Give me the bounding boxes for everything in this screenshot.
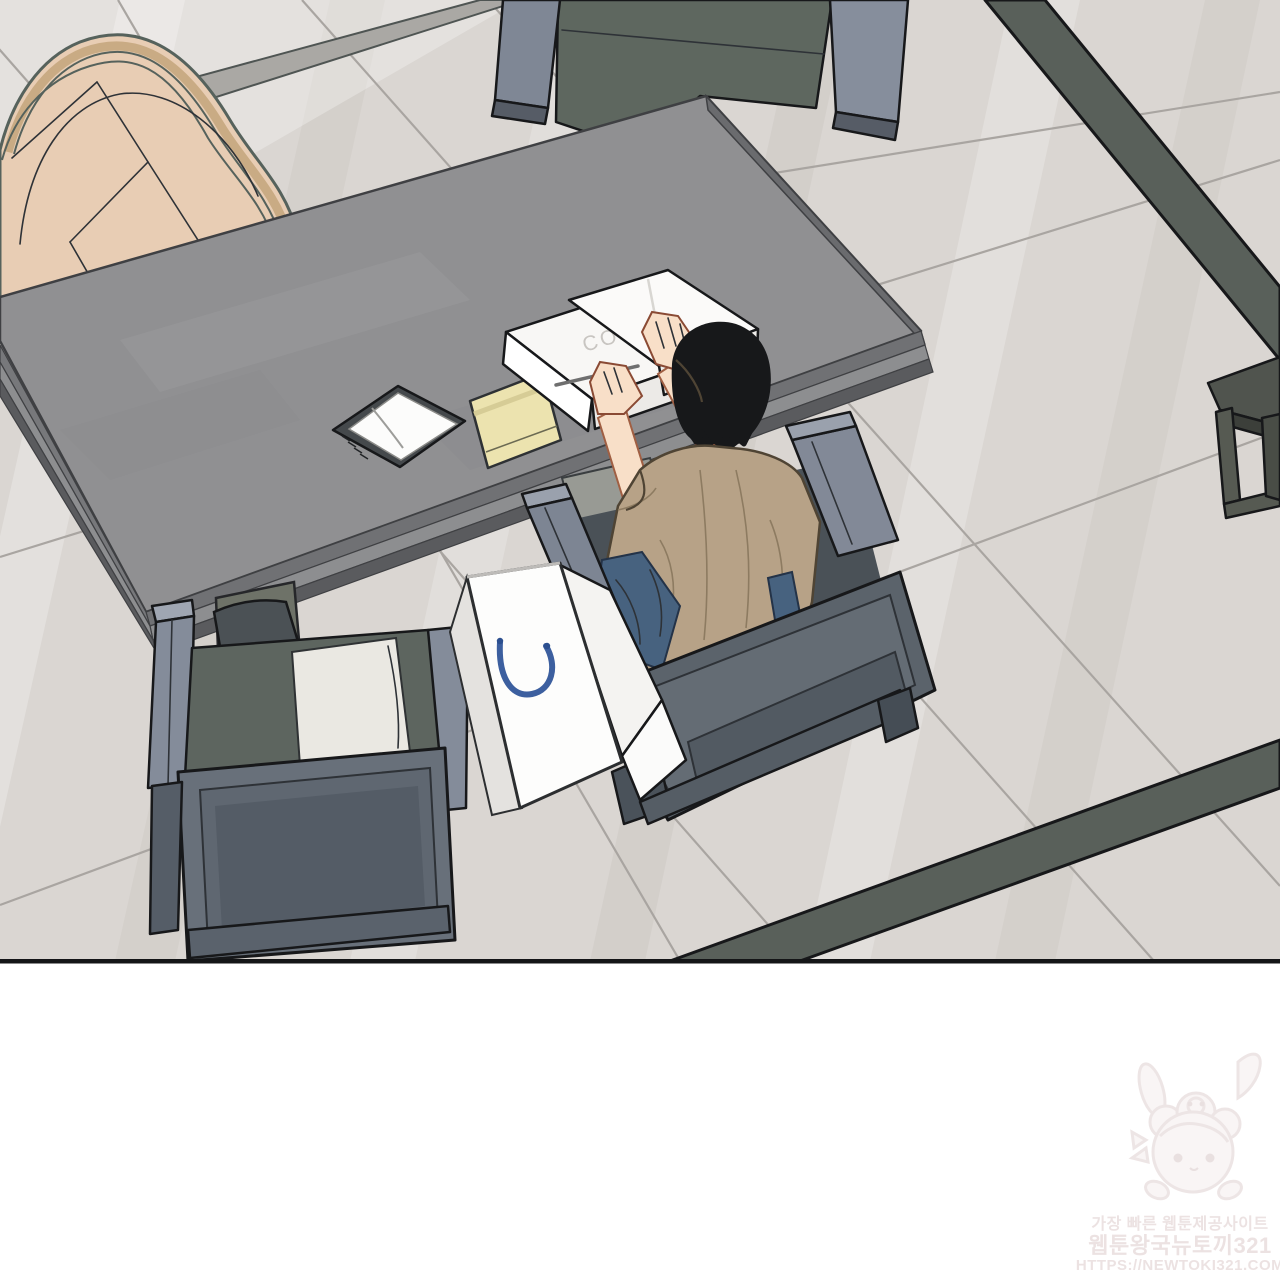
- watermark-line-2: 웹툰왕국뉴토끼321: [1088, 1233, 1271, 1258]
- watermark-mascot: [1132, 1054, 1260, 1202]
- comic-panel-illustration: CO: [0, 0, 1280, 1280]
- watermark: 가장 빠른 웹툰제공사이트 웹툰왕국뉴토끼321 HTTPS://NEWTOKI…: [1076, 1054, 1280, 1274]
- watermark-line-1: 가장 빠른 웹툰제공사이트: [1091, 1215, 1268, 1233]
- watermark-line-3: HTTPS://NEWTOKI321.COM: [1076, 1257, 1280, 1274]
- panel-border-bottom: [0, 959, 1280, 964]
- guest-armchair: [148, 600, 468, 961]
- webtoon-page: CO: [0, 0, 1280, 1280]
- guest-chair-cushion: [292, 638, 410, 766]
- panel-scene: CO: [0, 0, 1280, 961]
